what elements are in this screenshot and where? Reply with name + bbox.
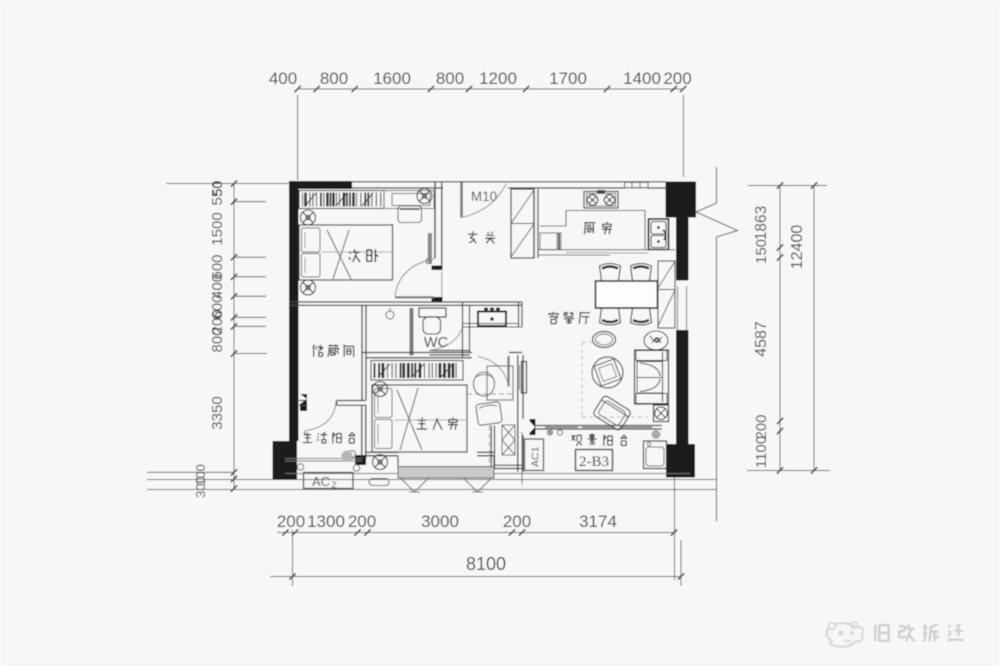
svg-text:800: 800 [209,327,226,352]
svg-text:12400: 12400 [789,225,806,270]
svg-text:3350: 3350 [209,396,226,429]
svg-text:3174: 3174 [579,512,617,531]
svg-text:200: 200 [348,512,376,531]
svg-text:WC: WC [424,335,448,351]
svg-text:1863: 1863 [753,206,770,240]
svg-text:3000: 3000 [421,512,459,531]
svg-text:300: 300 [193,476,208,498]
svg-text:800: 800 [320,69,348,88]
svg-text:1200: 1200 [479,69,517,88]
svg-text:4587: 4587 [753,321,770,357]
svg-text:M10: M10 [471,189,497,204]
svg-text:1100: 1100 [753,436,770,468]
svg-text:1400: 1400 [623,69,661,88]
svg-text:AC1: AC1 [530,446,542,467]
svg-text:550: 550 [209,180,226,205]
svg-text:8100: 8100 [466,554,506,574]
svg-text:200: 200 [753,414,770,439]
svg-text:1500: 1500 [209,212,226,245]
svg-text:200: 200 [277,512,305,531]
svg-text:400: 400 [269,69,297,88]
svg-text:1700: 1700 [549,69,587,88]
svg-text:200: 200 [503,512,531,531]
svg-text:800: 800 [436,69,464,88]
svg-text:1300: 1300 [307,512,345,531]
svg-text:AC: AC [312,474,330,489]
svg-text:2-B3: 2-B3 [579,454,609,470]
svg-text:2: 2 [331,480,336,490]
svg-text:150: 150 [753,239,770,264]
svg-text:1600: 1600 [373,69,411,88]
svg-text:200: 200 [663,69,691,88]
